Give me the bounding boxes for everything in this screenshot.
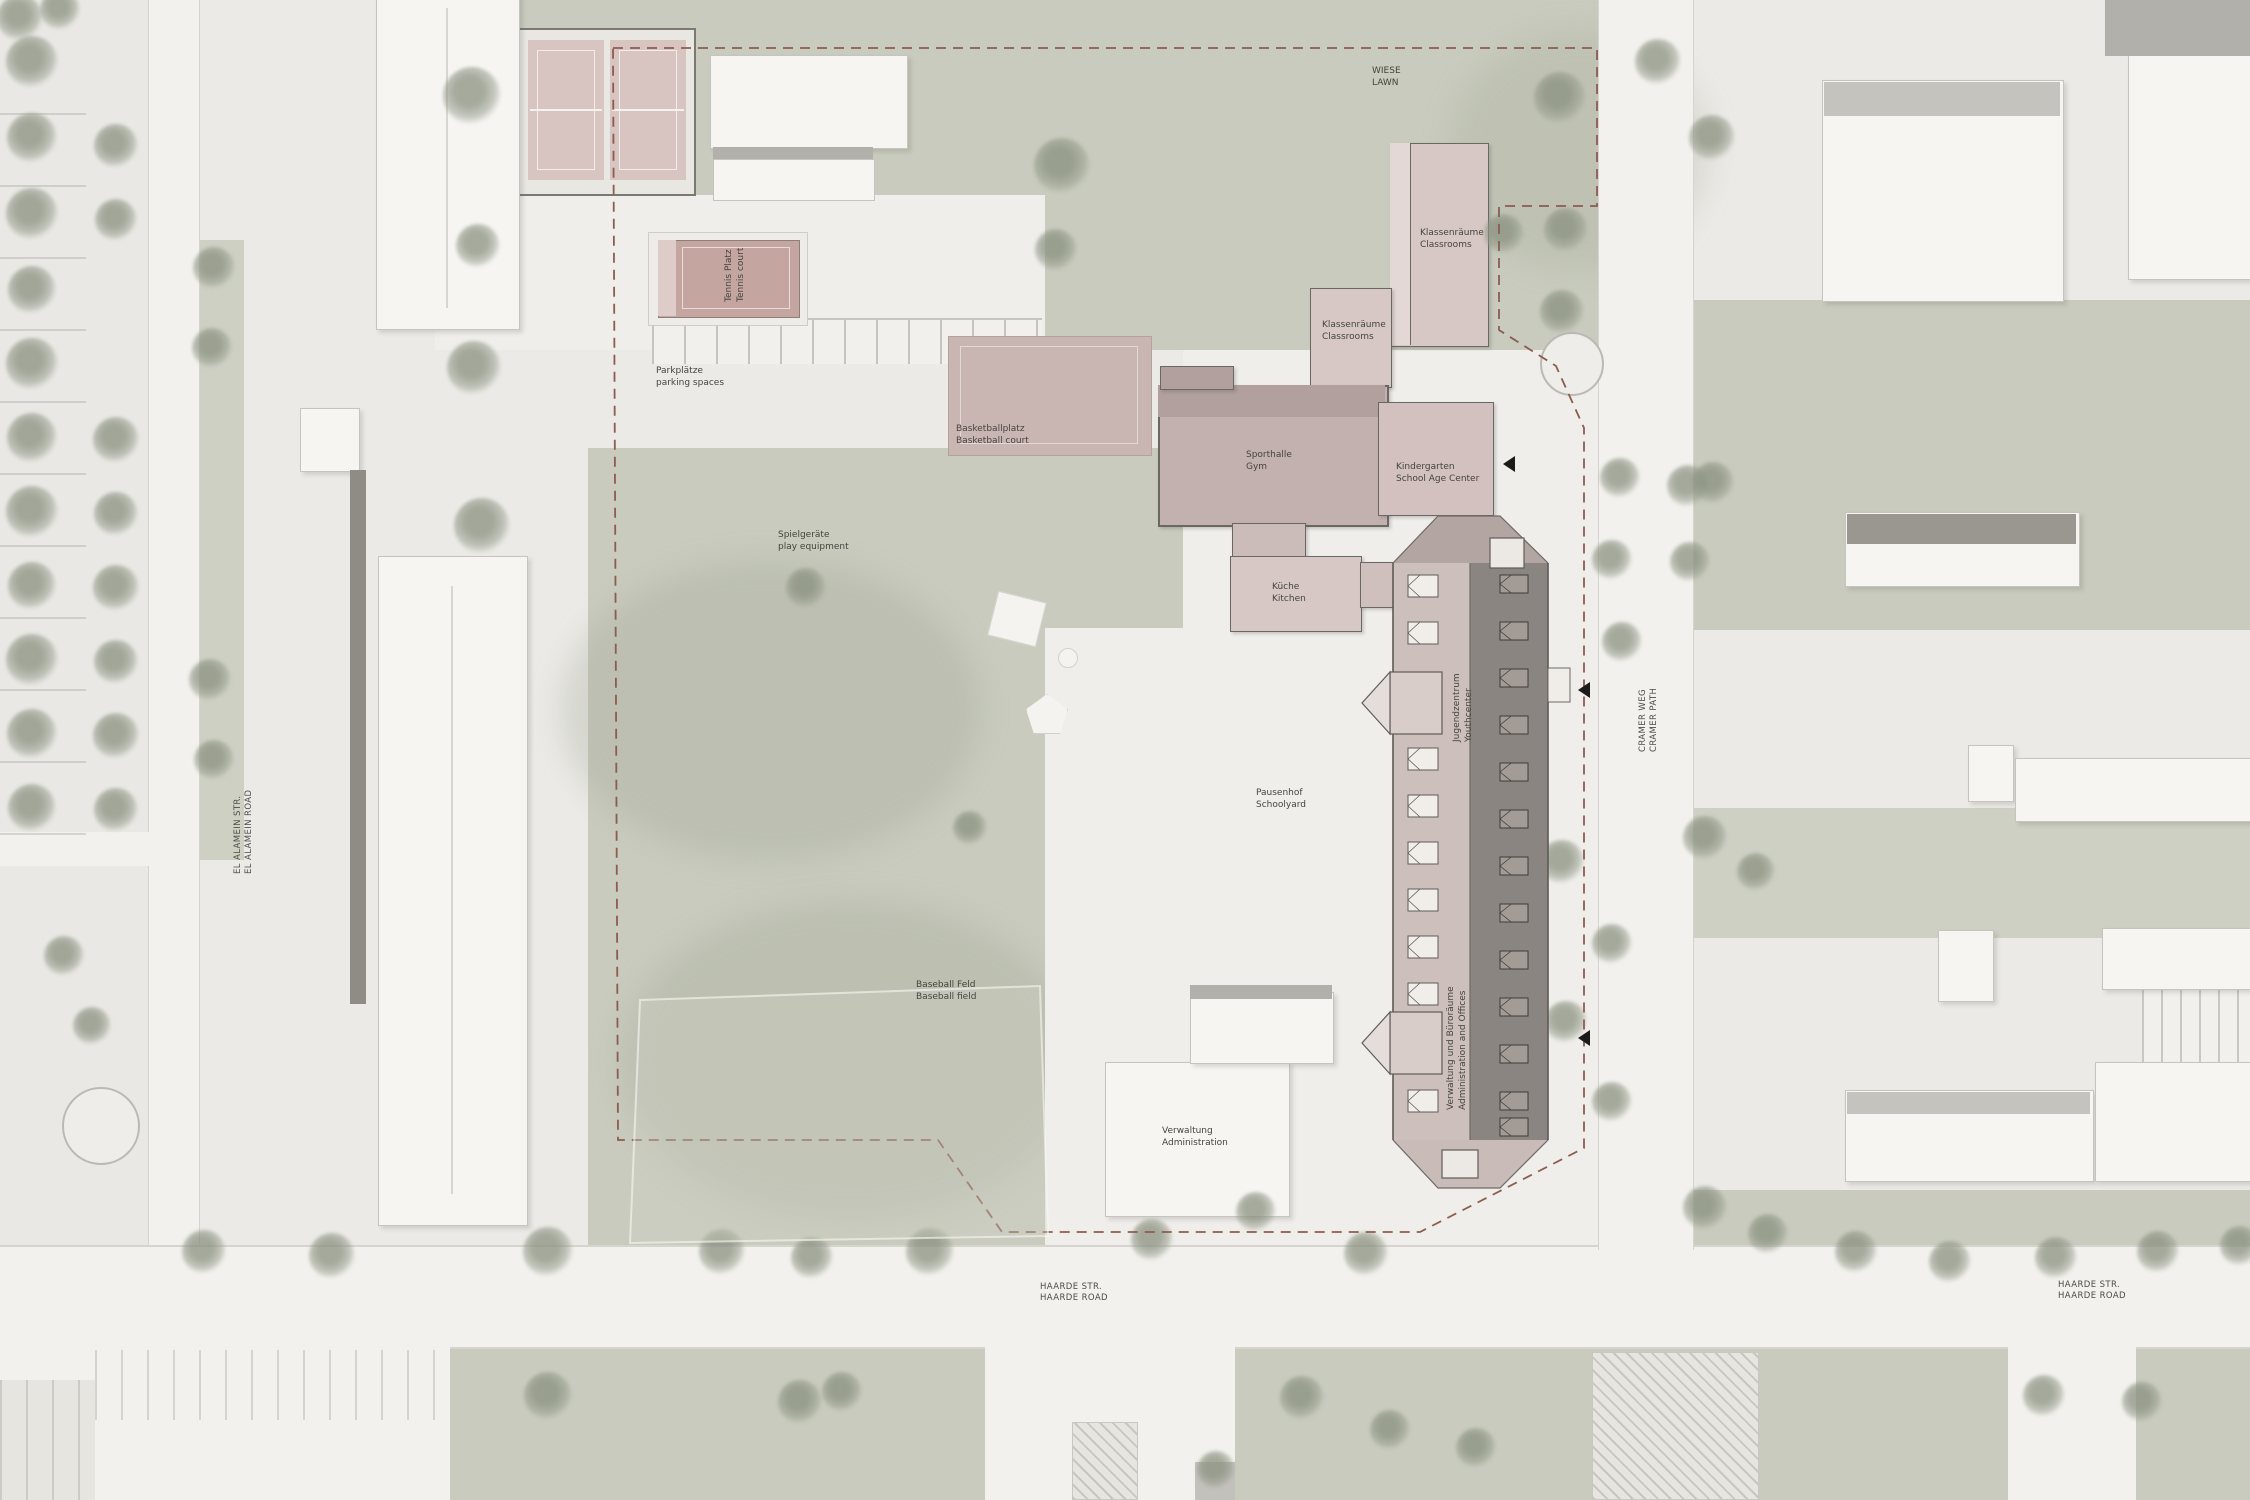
roof-skylight-box [1500, 998, 1528, 1016]
label-parkplaetze: Parkplätzeparking spaces [656, 366, 724, 389]
label-classrooms-b: KlassenräumeClassrooms [1322, 320, 1386, 343]
site-plan: WIESELAWN Tennis PlatzTennis court Parkp… [0, 0, 2250, 1500]
label-haarde-center: HAARDE STR.HAARDE ROAD [1040, 1282, 1108, 1304]
label-haarde-right: HAARDE STR.HAARDE ROAD [2058, 1280, 2126, 1302]
label-verwaltung: VerwaltungAdministration [1162, 1126, 1228, 1149]
roof-skylight-box [1408, 936, 1438, 958]
roof-skylight-box [1500, 575, 1528, 593]
label-spielgeraete: Spielgeräteplay equipment [778, 530, 849, 553]
roof-skylight-box [1408, 748, 1438, 770]
label-el-alamein: EL ALAMEIN STR.EL ALAMEIN ROAD [233, 790, 255, 874]
label-classrooms-a: KlassenräumeClassrooms [1420, 228, 1484, 251]
roof-skylight-box [1408, 889, 1438, 911]
roof-skylight-box [1408, 795, 1438, 817]
roof-skylight-box [1408, 842, 1438, 864]
roof-skylight-box [1500, 857, 1528, 875]
roof-skylight-box [1500, 622, 1528, 640]
label-pausenhof: PausenhofSchoolyard [1256, 788, 1306, 811]
label-verwaltung-buero: Verwaltung und BüroräumeAdministration a… [1446, 986, 1469, 1110]
roof-box-large-2 [1362, 1012, 1442, 1074]
roof-skylight-box [1500, 716, 1528, 734]
roof-skylight-box [1408, 983, 1438, 1005]
roof-box-large-1 [1362, 672, 1442, 734]
roof-skylight-box [1500, 1118, 1528, 1136]
label-wiese: WIESELAWN [1372, 66, 1401, 89]
roof-skylight-box [1408, 1090, 1438, 1112]
entrance-arrow-kindergarten [1503, 456, 1515, 472]
baseball-field-outline [630, 986, 1048, 1243]
roof-skylight-box [1408, 622, 1438, 644]
label-kueche: KücheKitchen [1272, 582, 1306, 605]
roof-skylight-box [1500, 951, 1528, 969]
label-tennis: Tennis PlatzTennis court [724, 248, 747, 302]
label-jugendzentrum: JugendzentrumYouthcenter [1452, 673, 1475, 742]
label-baseball: Baseball FeldBaseball field [916, 980, 976, 1003]
label-sporthalle: SporthalleGym [1246, 450, 1292, 473]
roof-skylight-box [1500, 763, 1528, 781]
label-kindergarten: KindergartenSchool Age Center [1396, 462, 1479, 485]
roof-skylight-box [1500, 1092, 1528, 1110]
roof-skylight-box [1408, 575, 1438, 597]
roof-skylight-box [1500, 669, 1528, 687]
roof-skylight-box [1500, 904, 1528, 922]
roof-skylight-box [1500, 810, 1528, 828]
label-basketball: BasketballplatzBasketball court [956, 424, 1029, 447]
roof-skylight-box [1500, 1045, 1528, 1063]
label-cramer: CRAMER WEGCRAMER PATH [1638, 688, 1660, 752]
side-tab-right [1548, 668, 1570, 702]
site-plan-overlay [0, 0, 2250, 1500]
